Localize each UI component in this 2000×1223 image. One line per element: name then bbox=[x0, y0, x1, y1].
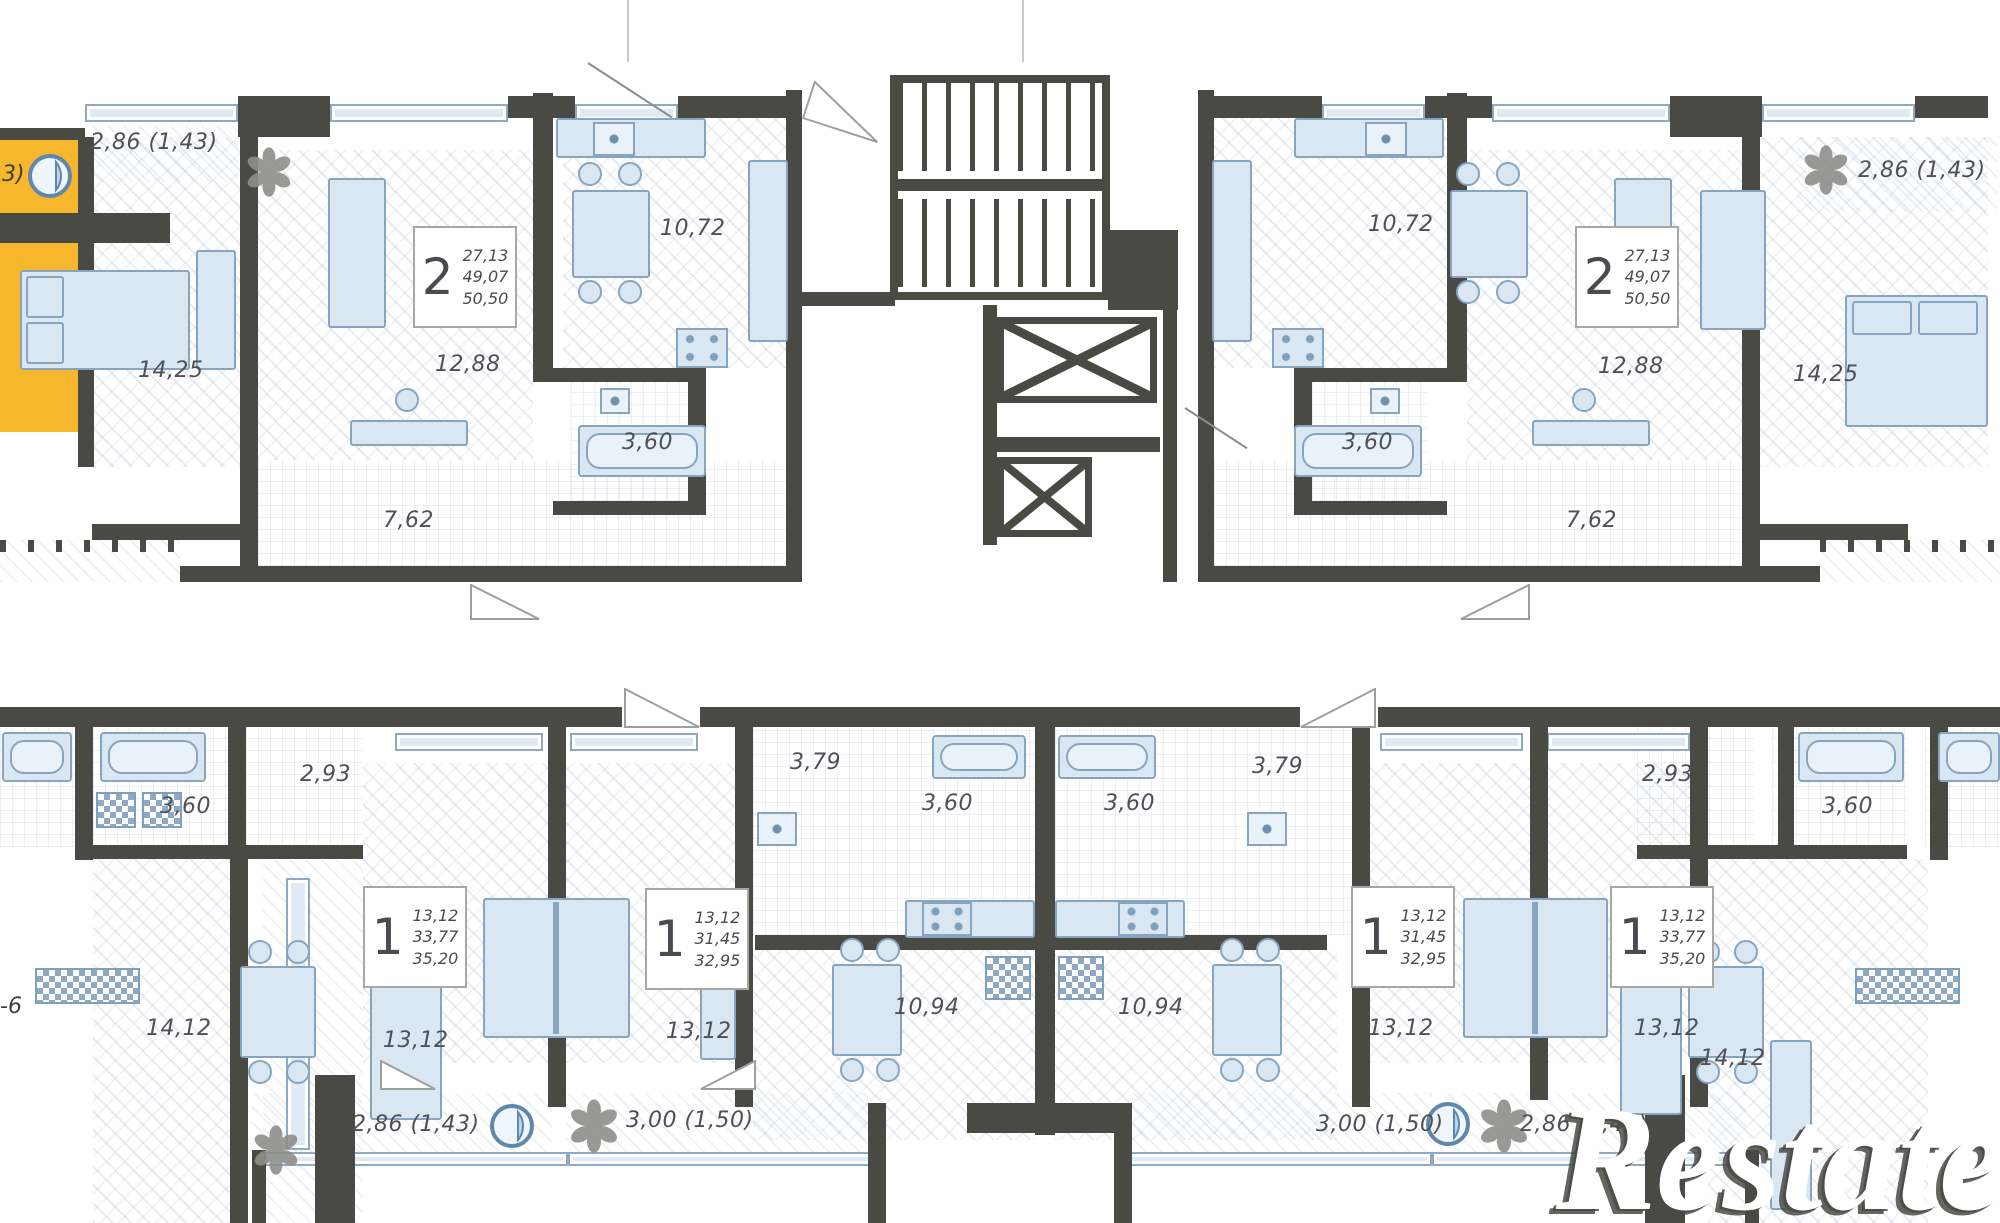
chair bbox=[1256, 1058, 1280, 1082]
apartment-stats: 1 13,12 31,45 32,95 bbox=[645, 888, 749, 990]
wall bbox=[983, 437, 1160, 452]
balcony-glazing bbox=[568, 1152, 880, 1166]
wall bbox=[533, 93, 553, 382]
window bbox=[1547, 733, 1690, 751]
chair bbox=[578, 280, 602, 304]
kitchenette-counter bbox=[1855, 968, 1960, 1004]
living-space: 27,13 bbox=[463, 245, 509, 267]
kitchen-area-label: 10,94 bbox=[894, 995, 959, 1020]
floor-plan: 2 27,13 49,07 50,50 2 27,13 49,07 50,50 … bbox=[0, 0, 2000, 1223]
plant-icon bbox=[1800, 144, 1852, 196]
room-space: 13,12 bbox=[413, 905, 459, 927]
hall-floor bbox=[258, 460, 786, 566]
hall-area-label: 3,79 bbox=[790, 750, 841, 775]
wall bbox=[553, 501, 706, 515]
area: 31,45 bbox=[1401, 926, 1447, 948]
stair-landing-wall bbox=[898, 179, 1102, 191]
desk bbox=[1532, 420, 1650, 446]
wall bbox=[1198, 566, 1820, 582]
kitchen-living-area-label: 14,12 bbox=[146, 1016, 211, 1041]
plant-icon bbox=[243, 146, 295, 198]
bathtub bbox=[1798, 732, 1904, 782]
chair bbox=[840, 938, 864, 962]
wall bbox=[1108, 230, 1178, 310]
chair bbox=[1256, 938, 1280, 962]
total-area: 35,20 bbox=[413, 948, 459, 970]
wall bbox=[93, 845, 363, 859]
wall bbox=[1294, 501, 1447, 515]
rooms-count: 2 bbox=[1584, 252, 1616, 302]
wall bbox=[786, 90, 802, 582]
toilet bbox=[757, 812, 797, 846]
hall-area-label: 7,62 bbox=[383, 508, 434, 533]
door bbox=[802, 81, 890, 144]
room-space: 13,12 bbox=[695, 907, 741, 929]
dining-table bbox=[1212, 964, 1282, 1056]
wardrobe bbox=[196, 250, 236, 370]
unit-number-fragment: -6 bbox=[0, 994, 22, 1019]
chair bbox=[248, 940, 272, 964]
wall bbox=[0, 213, 170, 243]
bedroom-area-label: 14,25 bbox=[138, 358, 203, 383]
washing-machine bbox=[1058, 956, 1104, 1000]
elevator bbox=[997, 457, 1092, 537]
hall-area-label: 7,62 bbox=[1566, 508, 1617, 533]
chair bbox=[618, 162, 642, 186]
balcony-area-label: 2,86 (1,43) bbox=[352, 1112, 480, 1137]
wall bbox=[1742, 110, 1760, 582]
area: 49,07 bbox=[1625, 266, 1671, 288]
pillow bbox=[26, 322, 64, 364]
kitchen-sink bbox=[593, 122, 635, 156]
bathtub bbox=[2, 732, 72, 782]
room-space: 13,12 bbox=[1660, 905, 1706, 927]
wall bbox=[1778, 710, 1794, 858]
rooms-count: 2 bbox=[422, 252, 454, 302]
apartment-stats: 1 13,12 33,77 35,20 bbox=[1610, 886, 1714, 988]
wall bbox=[553, 368, 706, 382]
stair-flight bbox=[898, 199, 1102, 287]
elevator-x-icon bbox=[1004, 464, 1085, 530]
upper-floor-outline bbox=[627, 0, 629, 62]
area: 33,77 bbox=[413, 926, 459, 948]
chair bbox=[1496, 280, 1520, 304]
upper-floor-outline bbox=[1022, 0, 1024, 62]
sofa bbox=[328, 178, 386, 328]
wall bbox=[1637, 845, 1907, 859]
chair bbox=[578, 162, 602, 186]
bathtub bbox=[1938, 732, 2000, 782]
drain-circle-icon bbox=[26, 152, 74, 200]
dining-table bbox=[1450, 190, 1528, 278]
rooms-count: 1 bbox=[1619, 912, 1651, 962]
wall bbox=[92, 524, 240, 540]
wall bbox=[700, 707, 1300, 727]
window bbox=[395, 733, 543, 751]
room-area-label: 13,12 bbox=[666, 1019, 731, 1044]
door bbox=[470, 584, 540, 620]
wall bbox=[1035, 710, 1055, 1135]
wall bbox=[1114, 1103, 1132, 1223]
wall bbox=[0, 707, 622, 727]
dining-table bbox=[240, 966, 316, 1058]
washing-machine bbox=[96, 792, 136, 828]
door bbox=[700, 1060, 756, 1090]
area: 31,45 bbox=[695, 928, 741, 950]
window bbox=[1380, 733, 1523, 751]
chair bbox=[395, 388, 419, 412]
chair bbox=[618, 280, 642, 304]
wall bbox=[1748, 524, 1908, 540]
pillow bbox=[1918, 301, 1978, 335]
wall bbox=[800, 292, 895, 306]
wardrobe-divider bbox=[1532, 902, 1538, 1034]
living-space: 27,13 bbox=[1625, 245, 1671, 267]
chair bbox=[1734, 940, 1758, 964]
door bbox=[1300, 688, 1376, 728]
wall bbox=[75, 710, 93, 860]
total-area: 32,95 bbox=[1401, 948, 1447, 970]
stove bbox=[1118, 902, 1168, 936]
plant-icon bbox=[250, 1124, 302, 1176]
total-area: 50,50 bbox=[463, 288, 509, 310]
apartment-stats: 1 13,12 31,45 32,95 bbox=[1351, 886, 1455, 988]
wall bbox=[678, 96, 802, 118]
balcony-glazing bbox=[1120, 1152, 1432, 1166]
kitchen-area-label: 10,94 bbox=[1118, 995, 1183, 1020]
chair bbox=[286, 940, 310, 964]
apartment-stats: 2 27,13 49,07 50,50 bbox=[1575, 226, 1679, 328]
rooms-count: 1 bbox=[654, 914, 686, 964]
pillow bbox=[1852, 301, 1912, 335]
kitchen-living-area-label: 14,12 bbox=[1700, 1046, 1765, 1071]
stair-flight bbox=[898, 83, 1102, 171]
wall bbox=[180, 566, 802, 582]
kitchen-sink bbox=[1365, 122, 1407, 156]
unit-number-fragment: 3) bbox=[2, 162, 25, 187]
stairs bbox=[890, 75, 1110, 300]
chair bbox=[248, 1060, 272, 1084]
window bbox=[570, 733, 698, 751]
living-area-label: 12,88 bbox=[435, 352, 500, 377]
hall-floor bbox=[246, 727, 363, 847]
wall bbox=[1915, 96, 1988, 118]
plant-icon bbox=[566, 1098, 622, 1154]
wall bbox=[228, 710, 246, 858]
chair bbox=[1456, 162, 1480, 186]
chair bbox=[1220, 938, 1244, 962]
door-swing-line bbox=[1184, 407, 1247, 449]
wall bbox=[983, 305, 997, 545]
bath-area-label: 3,60 bbox=[922, 791, 973, 816]
wall bbox=[967, 1103, 1117, 1133]
washing-machine bbox=[985, 956, 1031, 1000]
wall bbox=[1294, 368, 1447, 382]
wall bbox=[1163, 310, 1177, 582]
room-space: 13,12 bbox=[1401, 905, 1447, 927]
door bbox=[624, 688, 700, 728]
wall bbox=[315, 1075, 355, 1223]
room-area-label: 13,12 bbox=[1368, 1016, 1433, 1041]
kitchen-living-floor bbox=[93, 859, 230, 1223]
balcony-railing bbox=[0, 540, 180, 552]
stove bbox=[922, 902, 972, 936]
dining-table bbox=[572, 190, 650, 278]
wall bbox=[868, 1103, 886, 1223]
total-area: 32,95 bbox=[695, 950, 741, 972]
bathtub bbox=[100, 732, 206, 782]
bath-area-label: 3,60 bbox=[622, 430, 673, 455]
door bbox=[1460, 584, 1530, 620]
bathtub bbox=[1058, 735, 1156, 779]
wardrobe-divider bbox=[553, 902, 559, 1034]
balcony-area-label: 3,00 (1,50) bbox=[626, 1108, 754, 1133]
drain-circle-icon bbox=[488, 1102, 536, 1150]
chair bbox=[1496, 162, 1520, 186]
kitchen-counter bbox=[748, 160, 788, 342]
pillow bbox=[26, 276, 64, 318]
stove bbox=[676, 328, 728, 368]
bath-area-label: 3,60 bbox=[160, 794, 211, 819]
wall bbox=[1198, 96, 1322, 118]
bath-area-label: 3,60 bbox=[1822, 794, 1873, 819]
window bbox=[330, 104, 508, 122]
kitchenette-counter bbox=[35, 968, 140, 1004]
chair bbox=[1220, 1058, 1244, 1082]
stove bbox=[1272, 328, 1324, 368]
toilet bbox=[1247, 812, 1287, 846]
balcony-area-label: 2,86 (1,43) bbox=[1858, 158, 1986, 183]
window bbox=[1762, 104, 1915, 122]
wall bbox=[1378, 707, 2000, 727]
chair bbox=[840, 1058, 864, 1082]
elevator bbox=[997, 317, 1157, 403]
bath-area-label: 3,60 bbox=[1104, 791, 1155, 816]
living-area-label: 12,88 bbox=[1598, 354, 1663, 379]
room-area-label: 13,12 bbox=[383, 1028, 448, 1053]
door bbox=[380, 1060, 436, 1090]
chair bbox=[876, 938, 900, 962]
hall-area-label: 3,79 bbox=[1252, 754, 1303, 779]
bathroom-sink bbox=[1370, 388, 1400, 414]
bathroom-sink bbox=[600, 388, 630, 414]
apartment-stats: 2 27,13 49,07 50,50 bbox=[413, 226, 517, 328]
chair bbox=[1456, 280, 1480, 304]
chair bbox=[876, 1058, 900, 1082]
kitchen-area-label: 10,72 bbox=[660, 216, 725, 241]
hall-area-label: 2,93 bbox=[1642, 762, 1693, 787]
rooms-count: 1 bbox=[372, 912, 404, 962]
window bbox=[1492, 104, 1670, 122]
balcony-area-label: 2,86 (1,43) bbox=[90, 130, 218, 155]
area: 49,07 bbox=[463, 266, 509, 288]
total-area: 35,20 bbox=[1660, 948, 1706, 970]
dining-table bbox=[832, 964, 902, 1056]
balcony-area-label: 3,00 (1,50) bbox=[1316, 1112, 1444, 1137]
apartment-stats: 1 13,12 33,77 35,20 bbox=[363, 886, 467, 988]
hall-area-label: 2,93 bbox=[300, 762, 351, 787]
desk bbox=[350, 420, 468, 446]
bath-area-label: 3,60 bbox=[1342, 430, 1393, 455]
chair bbox=[286, 1060, 310, 1084]
area: 33,77 bbox=[1660, 926, 1706, 948]
total-area: 50,50 bbox=[1625, 288, 1671, 310]
chair bbox=[1572, 388, 1596, 412]
wall bbox=[0, 128, 85, 140]
room-area-label: 13,12 bbox=[1634, 1016, 1699, 1041]
kitchen-counter bbox=[1212, 160, 1252, 342]
window bbox=[85, 104, 238, 122]
wardrobe bbox=[1700, 190, 1766, 330]
bedroom-area-label: 14,25 bbox=[1793, 362, 1858, 387]
bathtub bbox=[932, 735, 1026, 779]
rooms-count: 1 bbox=[1360, 912, 1392, 962]
elevator-x-icon bbox=[1004, 324, 1150, 396]
watermark: Restate bbox=[1556, 1073, 2000, 1223]
kitchen-area-label: 10,72 bbox=[1368, 212, 1433, 237]
balcony-railing bbox=[1820, 540, 2000, 552]
